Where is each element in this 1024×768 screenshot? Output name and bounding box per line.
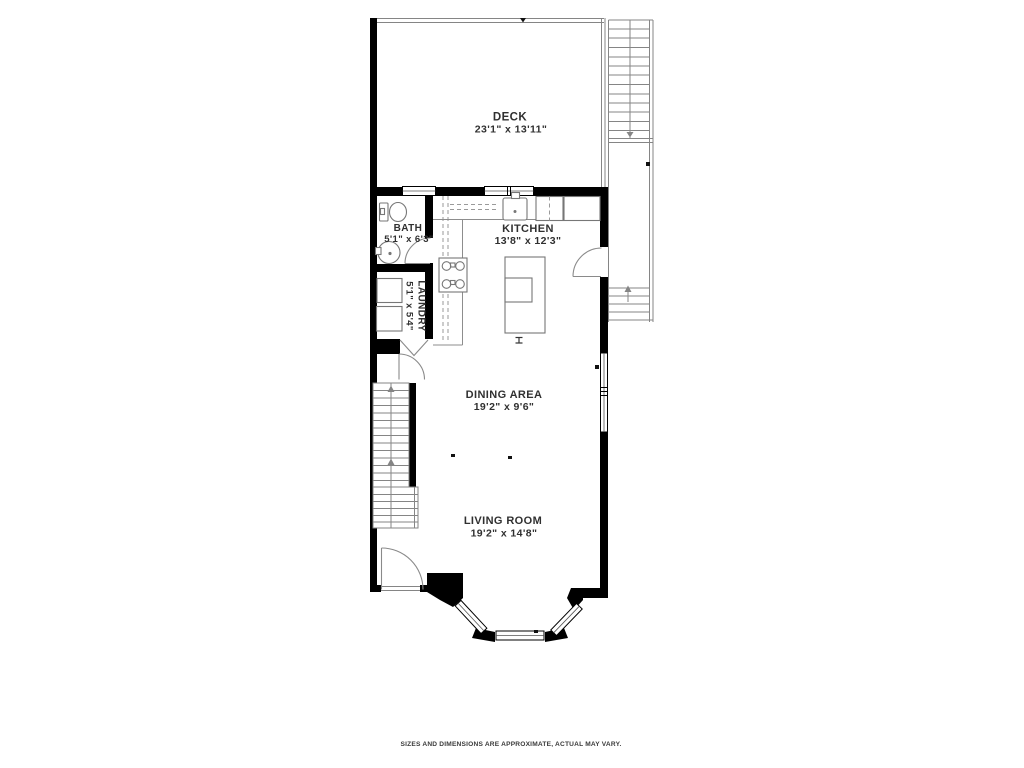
- kitchen-sink-fixture: [503, 193, 527, 221]
- bath-window: [403, 187, 436, 196]
- island-marker: [516, 338, 523, 344]
- front-door: [381, 548, 423, 591]
- kitchen-entry-door: [573, 248, 602, 277]
- kitchen-dims: 13'8" x 12'3": [495, 235, 562, 247]
- exterior-lower-stairs: [609, 286, 654, 321]
- deck-edge-marker: [520, 18, 526, 23]
- washer-fixture: [377, 279, 402, 303]
- stove-fixture: [439, 258, 467, 292]
- laundry-label-group: LAUNDRY 5'1" x 5'4": [404, 280, 427, 331]
- rail-marker: [646, 162, 650, 166]
- bay-left-pier: [427, 573, 463, 607]
- floor-plan: DECK 23'1" x 13'11" BATH 5'1" x 6'3" KIT…: [0, 0, 1024, 768]
- dryer-fixture: [377, 307, 403, 332]
- bath-label: BATH: [394, 223, 423, 234]
- living-label: LIVING ROOM: [464, 515, 542, 527]
- refrigerator-fixture: [536, 197, 600, 221]
- bottom-right-step-wall: [573, 588, 608, 598]
- dining-label: DINING AREA: [466, 389, 543, 401]
- deck-outline: [377, 18, 605, 188]
- dining-window: [595, 353, 608, 432]
- stairs-down-arrow-icon: [627, 120, 634, 138]
- bath-dims: 5'1" x 6'3": [384, 234, 434, 245]
- kitchen-label: KITCHEN: [502, 223, 554, 235]
- floor-marks: [451, 454, 512, 459]
- windows: [403, 187, 608, 641]
- footer-disclaimer: SIZES AND DIMENSIONS ARE APPROXIMATE, AC…: [401, 741, 622, 748]
- laundry-dims: 5'1" x 5'4": [404, 281, 415, 331]
- kitchen-island: [505, 257, 545, 333]
- toilet-fixture: [380, 203, 407, 222]
- deck-dims: 23'1" x 13'11": [475, 124, 548, 136]
- kitchen-window: [485, 187, 534, 196]
- dining-dims: 19'2" x 9'6": [474, 401, 535, 413]
- stairwell-door: [399, 354, 425, 380]
- laundry-bifold-door: [400, 340, 428, 356]
- laundry-label: LAUNDRY: [416, 280, 427, 331]
- exterior-stairs-treads: [609, 29, 650, 131]
- living-dims: 19'2" x 14'8": [471, 528, 538, 540]
- deck-label: DECK: [493, 112, 527, 124]
- exterior-deck-stairs: [609, 20, 654, 322]
- kitchen-fixtures: [433, 193, 600, 346]
- laundry-fixtures: [377, 279, 403, 332]
